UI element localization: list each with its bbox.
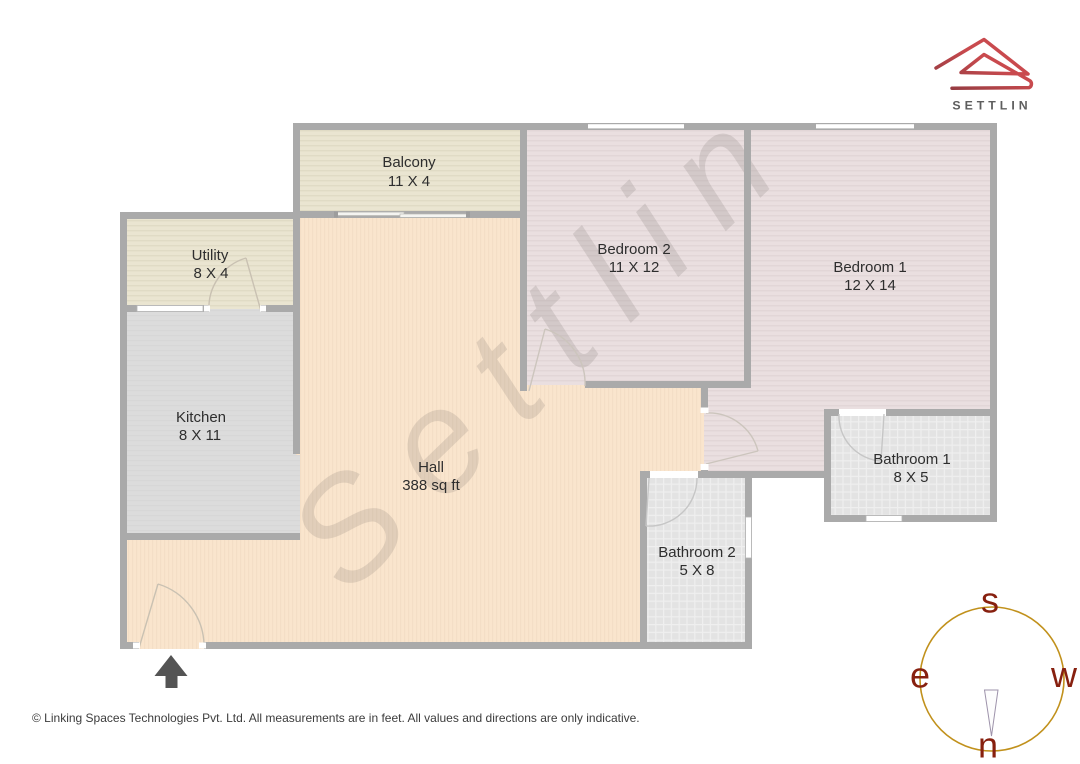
svg-text:SETTLIN: SETTLIN [952,99,1031,113]
svg-text:s: s [981,580,999,621]
svg-text:e: e [910,655,930,696]
svg-text:Balcony: Balcony [382,154,436,171]
svg-text:8 X 4: 8 X 4 [193,265,228,282]
svg-text:11 X 12: 11 X 12 [609,259,660,276]
svg-text:Bedroom 1: Bedroom 1 [833,259,906,276]
svg-text:8 X 5: 8 X 5 [893,469,928,486]
svg-text:8 X 11: 8 X 11 [179,427,221,444]
svg-text:Utility: Utility [192,247,229,264]
svg-text:Bathroom 1: Bathroom 1 [873,451,951,468]
svg-text:11 X 4: 11 X 4 [388,173,430,190]
svg-text:Bedroom 2: Bedroom 2 [597,241,670,258]
svg-text:5 X 8: 5 X 8 [679,562,714,579]
svg-text:Bathroom 2: Bathroom 2 [658,544,736,561]
svg-text:w: w [1050,654,1078,695]
svg-text:Kitchen: Kitchen [176,409,226,426]
svg-text:n: n [978,725,998,764]
svg-text:388 sq ft: 388 sq ft [402,477,460,494]
svg-text:© Linking Spaces Technologies: © Linking Spaces Technologies Pvt. Ltd. … [32,711,640,725]
svg-text:Hall: Hall [418,459,444,476]
svg-text:12 X 14: 12 X 14 [844,277,896,294]
